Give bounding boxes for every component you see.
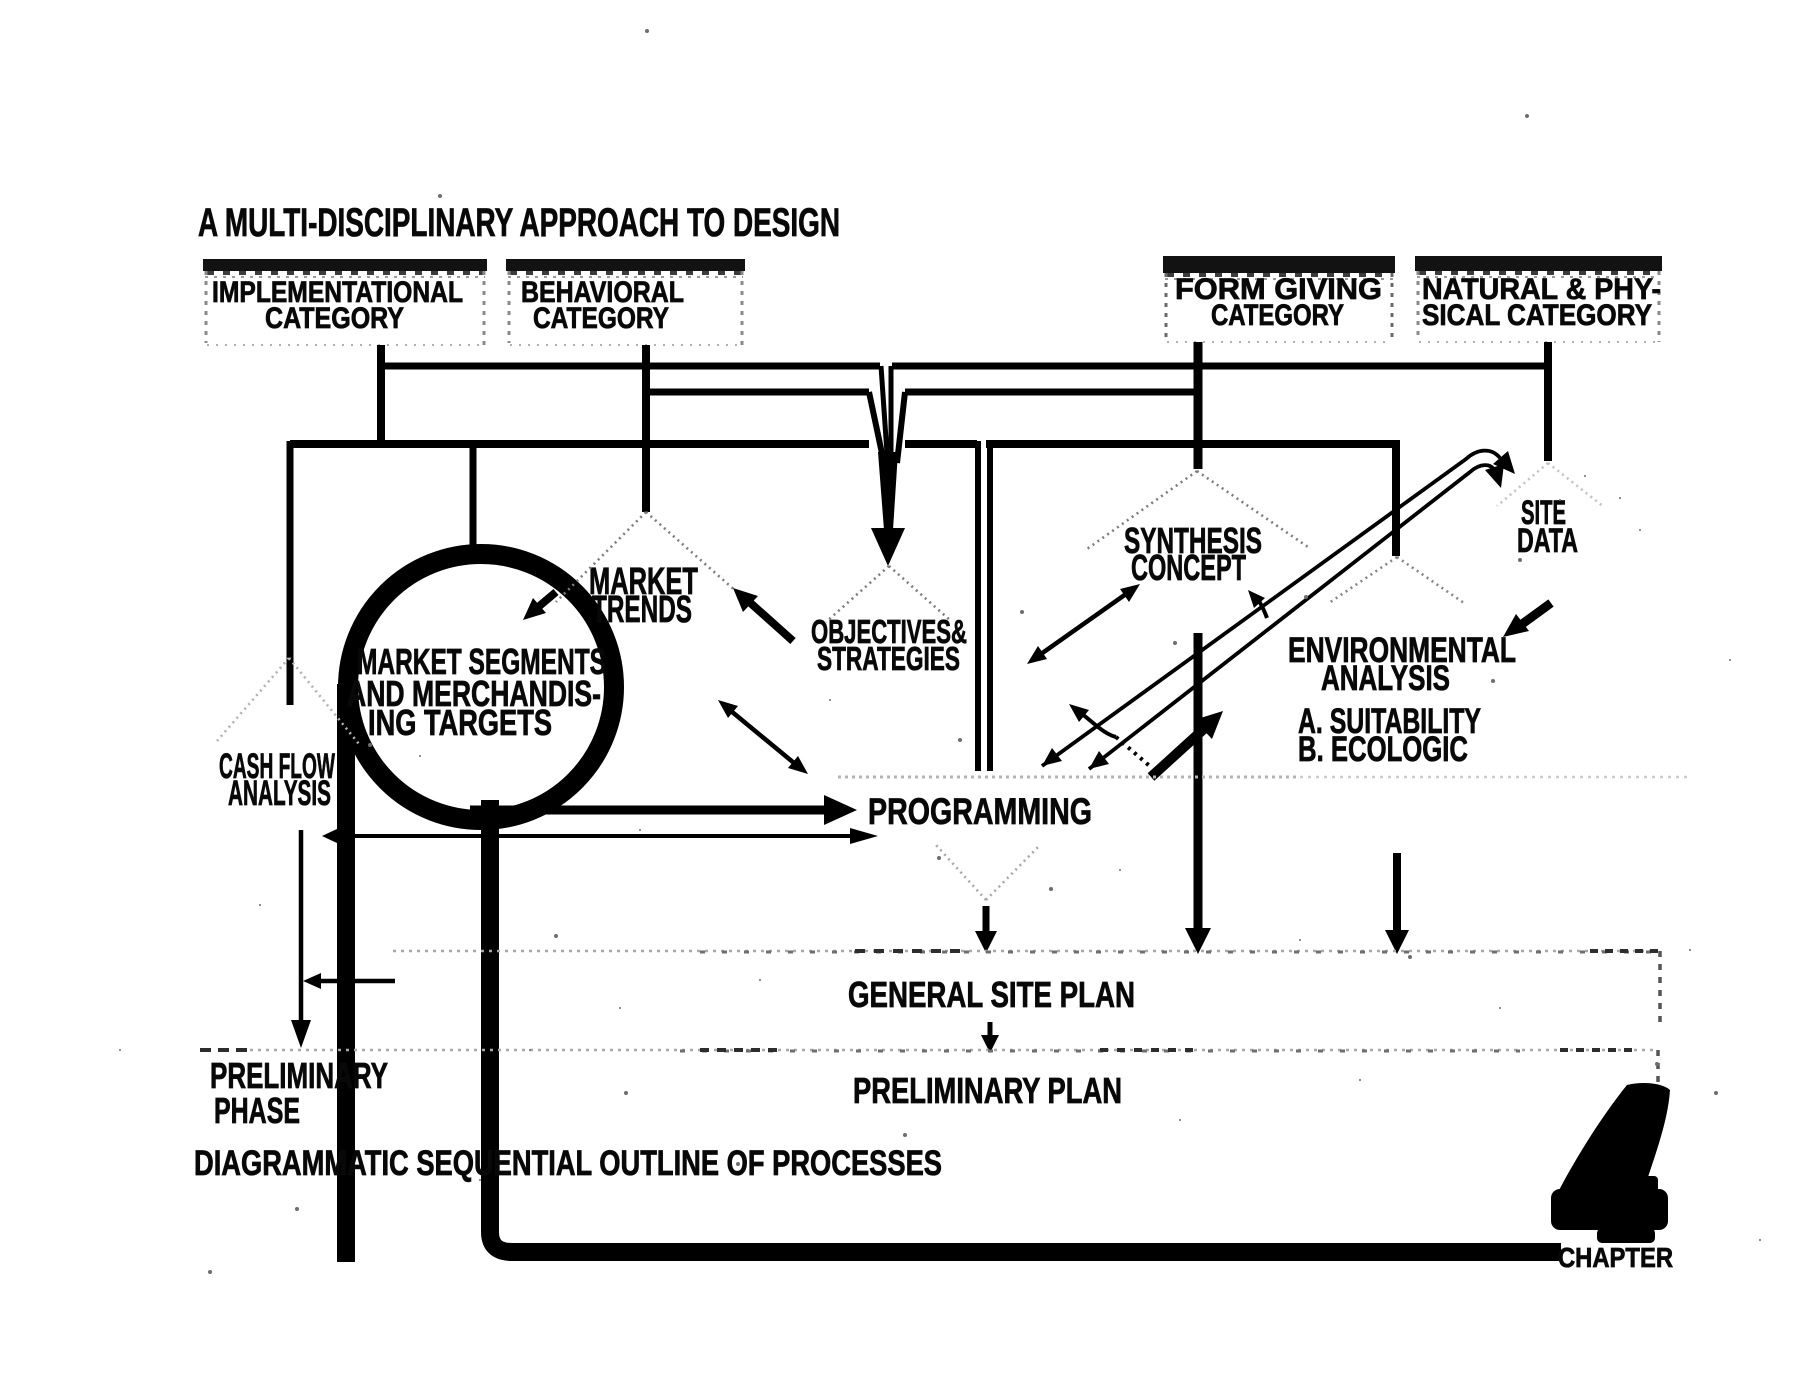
svg-text:CATEGORY: CATEGORY	[1211, 299, 1344, 332]
svg-text:GENERAL SITE PLAN: GENERAL SITE PLAN	[848, 974, 1135, 1015]
svg-text:PRELIMINARY PLAN: PRELIMINARY PLAN	[853, 1070, 1122, 1111]
svg-text:B. ECOLOGIC: B. ECOLOGIC	[1298, 730, 1468, 769]
svg-text:ANALYSIS: ANALYSIS	[1321, 659, 1450, 698]
svg-text:TRENDS: TRENDS	[592, 589, 692, 631]
svg-text:A MULTI-DISCIPLINARY APPROAC: A MULTI-DISCIPLINARY APPROACH TO DESIGN	[198, 201, 840, 245]
svg-text:CATEGORY: CATEGORY	[533, 302, 669, 335]
svg-text:STRATEGIES: STRATEGIES	[817, 640, 960, 677]
svg-text:SICAL CATEGORY: SICAL CATEGORY	[1422, 299, 1652, 332]
svg-text:PROGRAMMING: PROGRAMMING	[868, 791, 1092, 832]
svg-text:ING TARGETS: ING TARGETS	[368, 702, 552, 743]
svg-text:CHAPTER: CHAPTER	[1558, 1242, 1673, 1273]
svg-text:DIAGRAMMATIC SEQUENTIAL OUTL: DIAGRAMMATIC SEQUENTIAL OUTLINE OF PROCE…	[194, 1144, 942, 1183]
svg-text:ANALYSIS: ANALYSIS	[228, 774, 331, 813]
svg-text:CONCEPT: CONCEPT	[1131, 547, 1246, 588]
svg-text:CATEGORY: CATEGORY	[265, 302, 404, 335]
svg-text:DATA: DATA	[1517, 522, 1578, 560]
svg-text:PHASE: PHASE	[214, 1090, 300, 1131]
